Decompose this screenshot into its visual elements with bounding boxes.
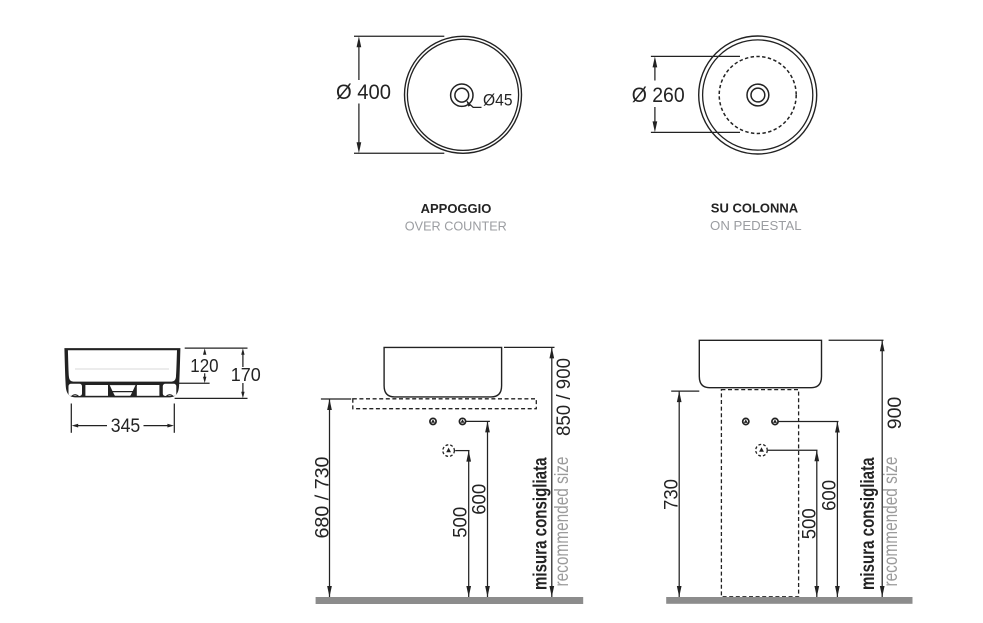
svg-text:600: 600: [468, 484, 490, 515]
svg-text:500: 500: [799, 508, 821, 539]
svg-text:OVER COUNTER: OVER COUNTER: [405, 219, 507, 234]
svg-text:900: 900: [884, 397, 906, 430]
svg-text:recommended size: recommended size: [552, 457, 573, 587]
svg-text:misura consigliata: misura consigliata: [530, 457, 551, 590]
svg-text:ON PEDESTAL: ON PEDESTAL: [710, 218, 802, 233]
svg-text:730: 730: [661, 479, 683, 510]
svg-text:APPOGGIO: APPOGGIO: [421, 201, 492, 216]
svg-text:SU COLONNA: SU COLONNA: [711, 201, 799, 216]
svg-text:Ø 260: Ø 260: [632, 84, 685, 107]
svg-text:recommended size: recommended size: [881, 457, 902, 587]
svg-text:850 / 900: 850 / 900: [553, 358, 575, 436]
svg-text:170: 170: [231, 364, 261, 385]
svg-text:600: 600: [819, 480, 841, 511]
svg-text:Ø 400: Ø 400: [336, 81, 391, 104]
svg-text:misura consigliata: misura consigliata: [858, 457, 879, 590]
svg-text:Ø45: Ø45: [483, 92, 513, 110]
svg-text:120: 120: [190, 355, 218, 376]
svg-text:680 / 730: 680 / 730: [312, 456, 334, 538]
svg-text:345: 345: [111, 416, 141, 437]
